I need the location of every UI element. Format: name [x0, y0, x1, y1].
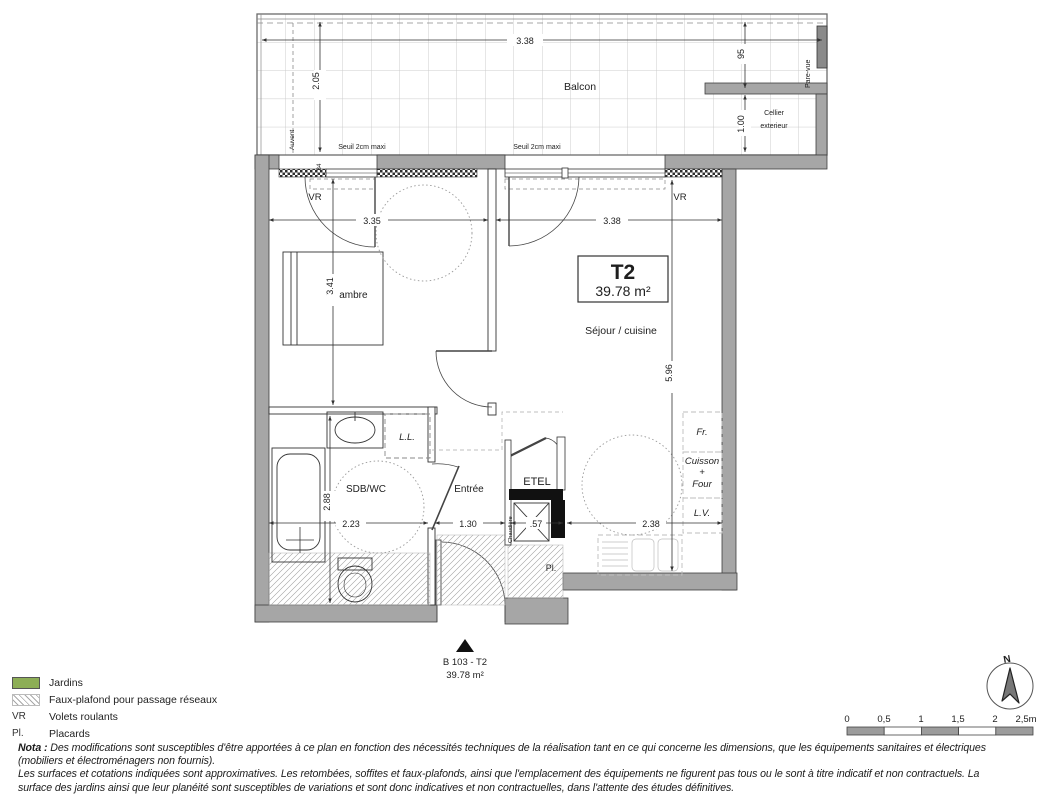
hatch-sdb: [269, 553, 430, 605]
nota-line-3: Les surfaces et cotations indiquées sont…: [18, 768, 1040, 781]
cooker-label-3: Four: [692, 479, 712, 490]
dim-sdb-h: 2.88: [322, 493, 332, 511]
cellier-label-2: exterieur: [760, 123, 788, 130]
nota-line-4: surface des jardins ainsi que leur plané…: [18, 782, 1040, 795]
pare-vue-label: Pare-vue: [805, 59, 812, 88]
dishwasher-label: L.V.: [694, 508, 710, 519]
floor-plan-page: { "plan": { "balcon_label": "Balcon", "t…: [0, 0, 1049, 800]
dim-balcony-width: 3.38: [516, 36, 534, 46]
legend-label: Faux-plafond pour passage réseaux: [49, 694, 217, 706]
entree-label: Entrée: [454, 484, 484, 495]
dim-cuisine-w: 2.38: [642, 519, 660, 529]
washbasin: [327, 412, 383, 448]
scale-bar: 0 0,5 1 1,5 2 2,5m: [844, 714, 1036, 735]
legend-label: Volets roulants: [49, 711, 118, 723]
dim-balcony-depth: 2.05: [311, 72, 321, 90]
seuil-outline-2: [505, 179, 665, 189]
vr-box-3: [665, 169, 722, 177]
ll-label: L.L.: [399, 432, 415, 443]
legend-item-faux-plafond: Faux-plafond pour passage réseaux: [12, 691, 217, 708]
bathtub: [272, 448, 325, 562]
nota-line-1: Nota : Des modifications sont susceptibl…: [18, 742, 1040, 755]
unit-ref-area: 39.78 m²: [446, 670, 484, 681]
hatch-entree: [437, 535, 505, 605]
nota-block: Nota : Des modifications sont susceptibl…: [18, 742, 1040, 795]
dim-100: 1.00: [736, 115, 746, 133]
cellier-label-1: Cellier: [764, 110, 785, 117]
partition-chambre-sejour: [488, 169, 496, 351]
sdb-right-wall-top: [428, 407, 435, 462]
door-chambre-entree: [436, 351, 492, 407]
scale-tick-2: 1: [918, 714, 923, 725]
dim-sdb-w: 2.23: [342, 519, 360, 529]
vr-label-right: VR: [673, 192, 686, 203]
faux-plafond-swatch: [12, 694, 40, 706]
ceiling-guides: [432, 412, 563, 450]
title-box: T2 39.78 m²: [578, 256, 668, 302]
sdb-top-wall: [269, 407, 437, 414]
right-wall: [722, 169, 736, 590]
etel-label: ETEL: [523, 476, 551, 488]
scale-tick-0: 0: [844, 714, 849, 725]
legend-item-vr: VR Volets roulants: [12, 708, 217, 725]
entrance-marker: B 103 - T2 39.78 m²: [443, 639, 487, 681]
hatched-zones: [269, 535, 563, 605]
legend-key: VR: [12, 711, 42, 722]
vr-label-left: VR: [308, 192, 321, 203]
bottom-wall-sejour: [563, 573, 737, 590]
counter: [598, 535, 682, 575]
legend-item-jardins: Jardins: [12, 674, 217, 691]
balcony: Balcon Auvent Seuil 2cm maxi Seuil 2cm m…: [257, 14, 827, 155]
sejour-label: Séjour / cuisine: [585, 325, 657, 337]
bottom-wall-center: [505, 598, 568, 624]
legend-item-pl: Pl. Placards: [12, 725, 217, 742]
unit-ref: B 103 - T2: [443, 657, 487, 668]
left-wall: [255, 155, 269, 622]
chaudiere-label: Chaudière: [508, 516, 514, 543]
north-arrow: N: [987, 654, 1033, 709]
north-needle: [1002, 668, 1019, 703]
north-label: N: [1003, 654, 1012, 666]
scale-tick-3: 1,5: [951, 714, 964, 725]
seuil-label-1: Seuil 2cm maxi: [338, 144, 386, 151]
legend-label: Jardins: [49, 677, 83, 689]
door-etel: [508, 438, 561, 457]
dim-chambre-h: 3.41: [325, 277, 335, 295]
cooker-label-2: +: [699, 467, 705, 478]
dim-entree-w: 1.30: [459, 519, 477, 529]
cooker-label-1: Cuisson: [685, 456, 719, 467]
jardins-swatch: [12, 677, 40, 689]
unit-area: 39.78 m²: [595, 283, 651, 299]
dim-chambre-w: 3.35: [363, 216, 381, 226]
nota-prefix: Nota :: [18, 742, 47, 754]
auvent-label: Auvent: [289, 130, 296, 150]
scale-tick-5: 2,5m: [1015, 714, 1036, 725]
nota-line-2: (mobiliers et électroménagers non fourni…: [18, 755, 1040, 768]
scale-tick-4: 2: [992, 714, 997, 725]
bottom-wall-left: [255, 605, 437, 622]
balcon-label: Balcon: [564, 81, 596, 93]
door-sejour-window: [509, 177, 579, 246]
seuil-label-2: Seuil 2cm maxi: [513, 144, 561, 151]
unit-type: T2: [611, 261, 636, 284]
door-chambre-window: [305, 177, 375, 247]
floor-plan-drawing: Balcon Auvent Seuil 2cm maxi Seuil 2cm m…: [0, 0, 1049, 740]
fridge-label: Fr.: [696, 427, 707, 438]
seuil-outline-1: [310, 179, 375, 189]
pl-label: Pl.: [546, 563, 557, 573]
legend-key: Pl.: [12, 728, 42, 739]
dim-sejour-w: 3.38: [603, 216, 621, 226]
nota-text: Des modifications sont susceptibles d'êt…: [50, 742, 986, 754]
scale-tick-1: 0,5: [877, 714, 890, 725]
sink: [602, 539, 678, 571]
legend-label: Placards: [49, 728, 90, 740]
sdb-label: SDB/WC: [346, 484, 386, 495]
dim-34: .34: [316, 163, 323, 172]
dim-95: 95: [736, 49, 746, 59]
dim-sejour-h: 5.96: [664, 364, 674, 382]
legend: Jardins Faux-plafond pour passage réseau…: [12, 674, 217, 742]
dim-etel-w: .57: [530, 519, 543, 529]
vr-box-2: [377, 169, 477, 177]
